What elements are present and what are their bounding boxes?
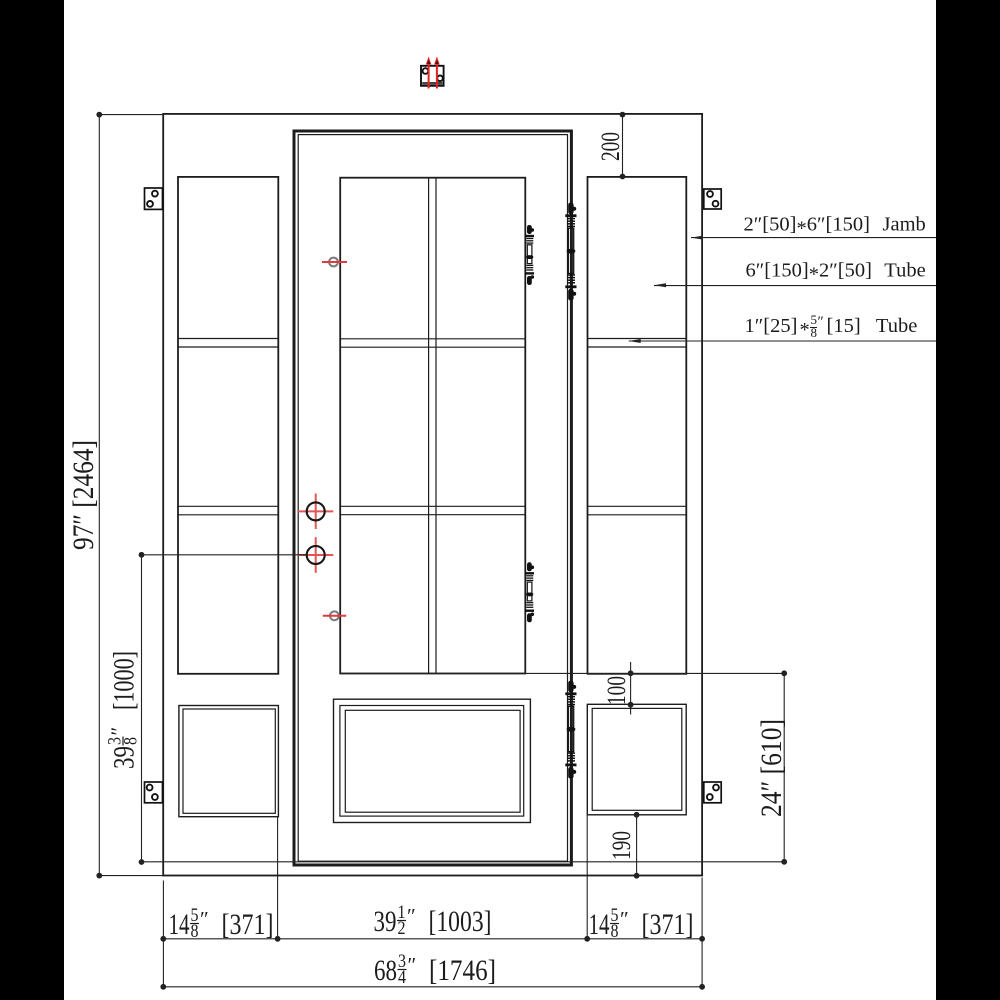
svg-text:″: ″ <box>407 904 416 928</box>
svg-text:[15]: [15] <box>827 315 861 337</box>
svg-text:*: * <box>800 319 810 341</box>
svg-text:97″ [2464]: 97″ [2464] <box>67 440 100 550</box>
svg-text:14: 14 <box>589 908 610 941</box>
svg-text:1″[25]: 1″[25] <box>745 315 798 337</box>
svg-text:″: ″ <box>408 953 417 977</box>
svg-text:Tube: Tube <box>884 260 925 282</box>
svg-text:39: 39 <box>108 746 141 769</box>
svg-text:[1746]: [1746] <box>429 954 496 987</box>
svg-text:200: 200 <box>596 132 625 161</box>
svg-text:″: ″ <box>200 907 209 931</box>
svg-text:4: 4 <box>398 967 406 988</box>
svg-text:14: 14 <box>169 908 190 941</box>
svg-text:2: 2 <box>398 918 406 939</box>
svg-text:24″ [610]: 24″ [610] <box>755 719 788 817</box>
svg-text:[1003]: [1003] <box>429 905 492 938</box>
svg-text:[371]: [371] <box>642 908 694 941</box>
svg-text:″: ″ <box>107 727 131 736</box>
svg-text:Tube: Tube <box>876 315 917 337</box>
svg-text:Jamb: Jamb <box>883 214 926 236</box>
svg-text:68: 68 <box>374 954 397 987</box>
svg-text:8: 8 <box>191 921 199 942</box>
svg-text:8: 8 <box>611 921 619 942</box>
svg-text:[1000]: [1000] <box>108 651 141 710</box>
svg-text:190: 190 <box>607 831 636 860</box>
svg-text:″: ″ <box>620 907 629 931</box>
svg-text:100: 100 <box>602 676 631 705</box>
svg-text:[371]: [371] <box>222 908 274 941</box>
svg-text:39: 39 <box>374 905 397 938</box>
svg-text:″: ″ <box>818 314 824 330</box>
svg-text:8: 8 <box>121 737 142 745</box>
